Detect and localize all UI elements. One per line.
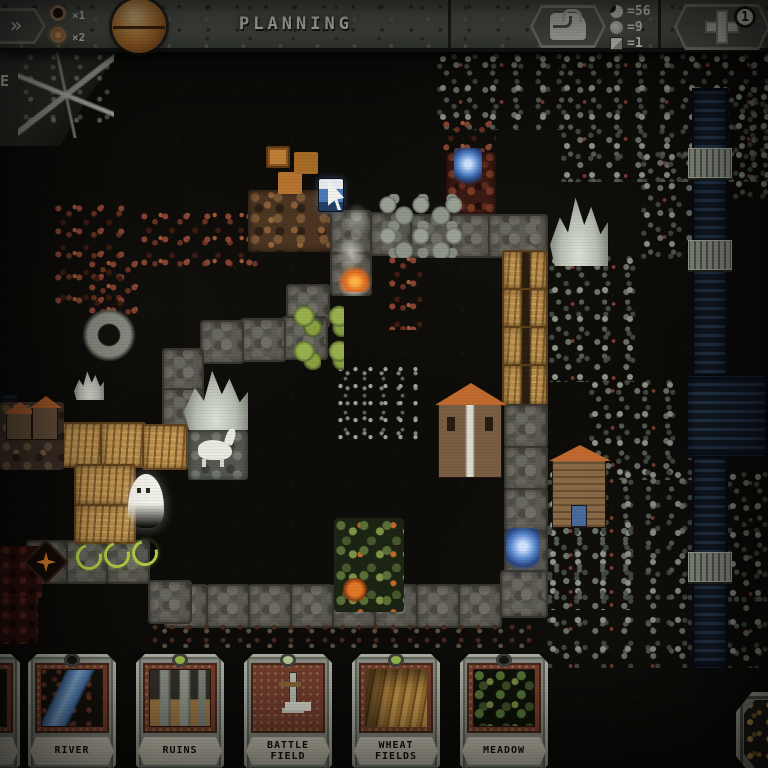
- resource-value: =1: [627, 37, 643, 50]
- cube-icon: [610, 37, 623, 50]
- house-sprite: [32, 406, 58, 440]
- card-river[interactable]: RIVER: [28, 654, 116, 768]
- tile-mountain[interactable]: [550, 190, 608, 266]
- resource-row: =1: [610, 35, 650, 51]
- fast-forward-button[interactable]: »: [0, 8, 46, 44]
- phase-title: PLANNING: [186, 14, 406, 34]
- tile-fringe[interactable]: [150, 622, 540, 648]
- ghost-sprite: [128, 474, 164, 528]
- card-name-plate: RIVER: [30, 737, 114, 765]
- orb-icon: [610, 21, 623, 34]
- card-name-plate: MEADOW: [462, 737, 546, 765]
- card-label: MEADOW: [483, 745, 525, 757]
- tile-bridge[interactable]: [688, 240, 732, 270]
- world-map[interactable]: [0, 0, 768, 768]
- card-gem: [496, 653, 512, 667]
- card-gem: [280, 653, 296, 667]
- tile-ruinsred[interactable]: [0, 596, 38, 644]
- barn-sprite: [552, 458, 606, 528]
- card-hand: RIVERRUINSBATTLE FIELDWHEAT FIELDSMEADOW: [0, 654, 768, 768]
- speed-x2-label: ×2: [72, 31, 85, 44]
- card-frame: [359, 663, 433, 733]
- enemyblue-sprite: [454, 148, 482, 186]
- card-art-river: [41, 669, 103, 727]
- speed-x2-radio[interactable]: [50, 27, 66, 43]
- card-label: WHEAT FIELDS: [375, 740, 417, 763]
- tile-wheatpath[interactable]: [502, 326, 548, 366]
- card-frame: [35, 663, 109, 733]
- card-art-ruins: [149, 669, 211, 727]
- tile-sparse[interactable]: [336, 364, 418, 442]
- resource-value: =56: [627, 5, 650, 18]
- card-gem: [172, 653, 188, 667]
- supply-count-badge: 1: [734, 6, 756, 28]
- bag-icon: [550, 13, 586, 40]
- dead-tree-icon: [18, 52, 114, 138]
- horse-sprite: [198, 440, 232, 460]
- tile-thicket[interactable]: [386, 254, 422, 330]
- tile-path[interactable]: [504, 404, 548, 448]
- tile-wheat[interactable]: [74, 504, 136, 544]
- tile-path[interactable]: [200, 320, 244, 364]
- card-meadow[interactable]: MEADOW: [460, 654, 548, 768]
- fireglow-sprite: [338, 266, 372, 292]
- day-orb: [112, 0, 166, 53]
- speed-x1-radio[interactable]: [50, 5, 66, 21]
- tile-wheat[interactable]: [74, 464, 136, 506]
- tile-forest[interactable]: [546, 518, 646, 610]
- tile-forest[interactable]: [726, 470, 768, 668]
- fast-forward-icon: »: [10, 13, 20, 40]
- resource-row: =9: [610, 19, 650, 35]
- enemyblue-sprite: [506, 528, 540, 572]
- tile-path[interactable]: [500, 570, 548, 618]
- tile-wheatpath[interactable]: [502, 288, 548, 328]
- card-label: RIVER: [54, 745, 89, 757]
- card-art-river: [0, 669, 7, 727]
- tile-forest[interactable]: [732, 90, 768, 200]
- card-name-plate: [0, 737, 18, 765]
- card-frame: [143, 663, 217, 733]
- card-art-wheat: [365, 669, 427, 727]
- card-frame: [467, 663, 541, 733]
- spider-sprite: [340, 578, 370, 604]
- tile-path[interactable]: [504, 488, 548, 532]
- tile-bridge[interactable]: [688, 148, 732, 178]
- tile-bush[interactable]: [292, 304, 344, 370]
- card-name-plate: BATTLE FIELD: [246, 737, 330, 765]
- card-frame: [0, 663, 13, 733]
- inventory-button[interactable]: [530, 5, 606, 48]
- bar-seam: [658, 0, 661, 48]
- tile-path[interactable]: [162, 348, 204, 392]
- church-sprite: [438, 402, 502, 478]
- tile-mountain[interactable]: [74, 368, 104, 400]
- speed-x1-label: ×1: [72, 9, 85, 22]
- tile-boulders[interactable]: [378, 194, 462, 258]
- card-gem: [388, 653, 404, 667]
- card-art-meadow: [473, 669, 535, 727]
- resource-list: =56=9=1: [610, 3, 650, 51]
- tile-forest[interactable]: [548, 254, 646, 382]
- card-gem: [64, 653, 80, 667]
- game-screen: E » ×1 ×2 PLANNING =56=9=1 1 RIVERRUINSB…: [0, 0, 768, 768]
- tile-bridge[interactable]: [688, 552, 732, 582]
- card-label: BATTLE FIELD: [267, 740, 309, 763]
- tile-wheatpath[interactable]: [502, 364, 548, 406]
- tile-wheat[interactable]: [100, 422, 146, 468]
- top-bar: » ×1 ×2 PLANNING =56=9=1 1: [0, 0, 768, 52]
- house-sprite: [6, 412, 32, 440]
- bar-seam: [448, 0, 451, 48]
- tile-path[interactable]: [504, 446, 548, 490]
- card-name-plate: WHEAT FIELDS: [354, 737, 438, 765]
- deck-art: [744, 700, 768, 768]
- tile-wheat[interactable]: [142, 424, 188, 470]
- card-battle-field[interactable]: BATTLE FIELD: [244, 654, 332, 768]
- moon-icon: [610, 5, 623, 18]
- card-wheat-fields[interactable]: WHEAT FIELDS: [352, 654, 440, 768]
- resource-row: =56: [610, 3, 650, 19]
- card-ruins[interactable]: RUINS: [136, 654, 224, 768]
- tile-wheatpath[interactable]: [502, 250, 548, 290]
- resource-value: =9: [627, 21, 643, 34]
- tile-river[interactable]: [686, 374, 768, 458]
- tile-path[interactable]: [148, 580, 192, 624]
- crates-sprite: [266, 146, 290, 168]
- card-name-plate: RUINS: [138, 737, 222, 765]
- card-river[interactable]: [0, 654, 20, 768]
- tile-thicket[interactable]: [138, 210, 262, 268]
- card-label: RUINS: [162, 745, 197, 757]
- decor-glyph: E: [0, 72, 9, 90]
- tile-path[interactable]: [240, 318, 286, 362]
- card-frame: [251, 663, 325, 733]
- tile-wheat[interactable]: [58, 422, 104, 468]
- well-sprite: [82, 308, 136, 362]
